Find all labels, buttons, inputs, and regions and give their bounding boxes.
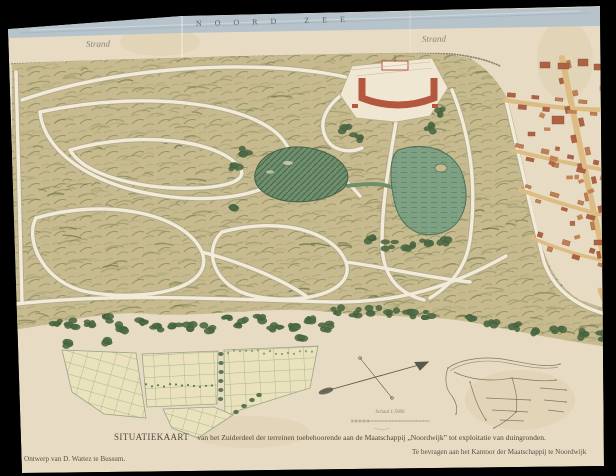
scale-label: Schaal 1:5000 <box>375 410 405 415</box>
strand-label-right: Strand <box>422 34 447 44</box>
map-title-rest: van het Zuiderdeel der terreinen toebeho… <box>197 433 546 442</box>
historical-map-image: NOORD ZEE Strand Strand <box>0 0 616 476</box>
credit-right: Te bevragen aan het Kantoor der Maatscha… <box>412 448 587 456</box>
lake-island <box>435 164 447 172</box>
credit-left: Ontwerp van D. Wattez te Bussum. <box>24 455 125 463</box>
map-title-lead: SITUATIEKAART <box>114 432 189 442</box>
map-photo-stage: NOORD ZEE Strand Strand <box>0 0 616 476</box>
strand-label-left: Strand <box>86 39 111 49</box>
